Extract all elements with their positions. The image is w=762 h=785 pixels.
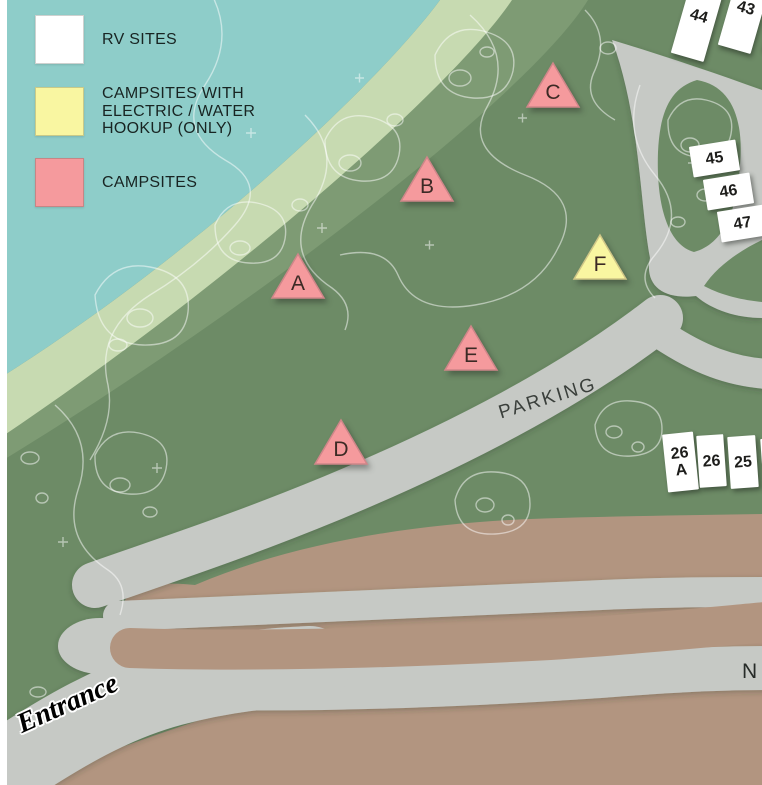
site-letter-d: D	[312, 438, 370, 462]
site-letter-e: E	[442, 344, 500, 368]
site-marker-c: C	[524, 60, 582, 112]
site-marker-b: B	[398, 154, 456, 206]
legend-swatch-rv-sites	[35, 15, 84, 64]
legend-item-campsites: CAMPSITES	[35, 158, 197, 207]
campground-map: RV SITESCAMPSITES WITHELECTRIC / WATERHO…	[0, 0, 762, 785]
page-edge-strip	[0, 0, 7, 785]
site-letter-a: A	[269, 272, 327, 296]
site-marker-f: F	[571, 232, 629, 284]
legend-swatch-hookup-campsites	[35, 87, 84, 136]
legend-label-hookup-campsites: CAMPSITES WITHELECTRIC / WATERHOOKUP (ON…	[102, 85, 255, 138]
rv-site-46: 46	[702, 172, 753, 210]
legend-item-rv-sites: RV SITES	[35, 15, 177, 64]
rv-site-25: 25	[727, 435, 759, 489]
site-marker-d: D	[312, 417, 370, 469]
rv-site-45: 45	[688, 139, 739, 177]
legend-label-rv-sites: RV SITES	[102, 31, 177, 49]
site-letter-b: B	[398, 175, 456, 199]
site-letter-f: F	[571, 253, 629, 277]
site-letter-c: C	[524, 81, 582, 105]
legend-label-campsites: CAMPSITES	[102, 174, 197, 192]
rv-site-26a: 26A	[662, 432, 699, 493]
north-indicator: N	[742, 660, 757, 684]
rv-site-26: 26	[696, 434, 727, 488]
site-marker-a: A	[269, 251, 327, 303]
legend-swatch-campsites	[35, 158, 84, 207]
legend-item-hookup-campsites: CAMPSITES WITHELECTRIC / WATERHOOKUP (ON…	[35, 85, 255, 138]
site-marker-e: E	[442, 323, 500, 375]
